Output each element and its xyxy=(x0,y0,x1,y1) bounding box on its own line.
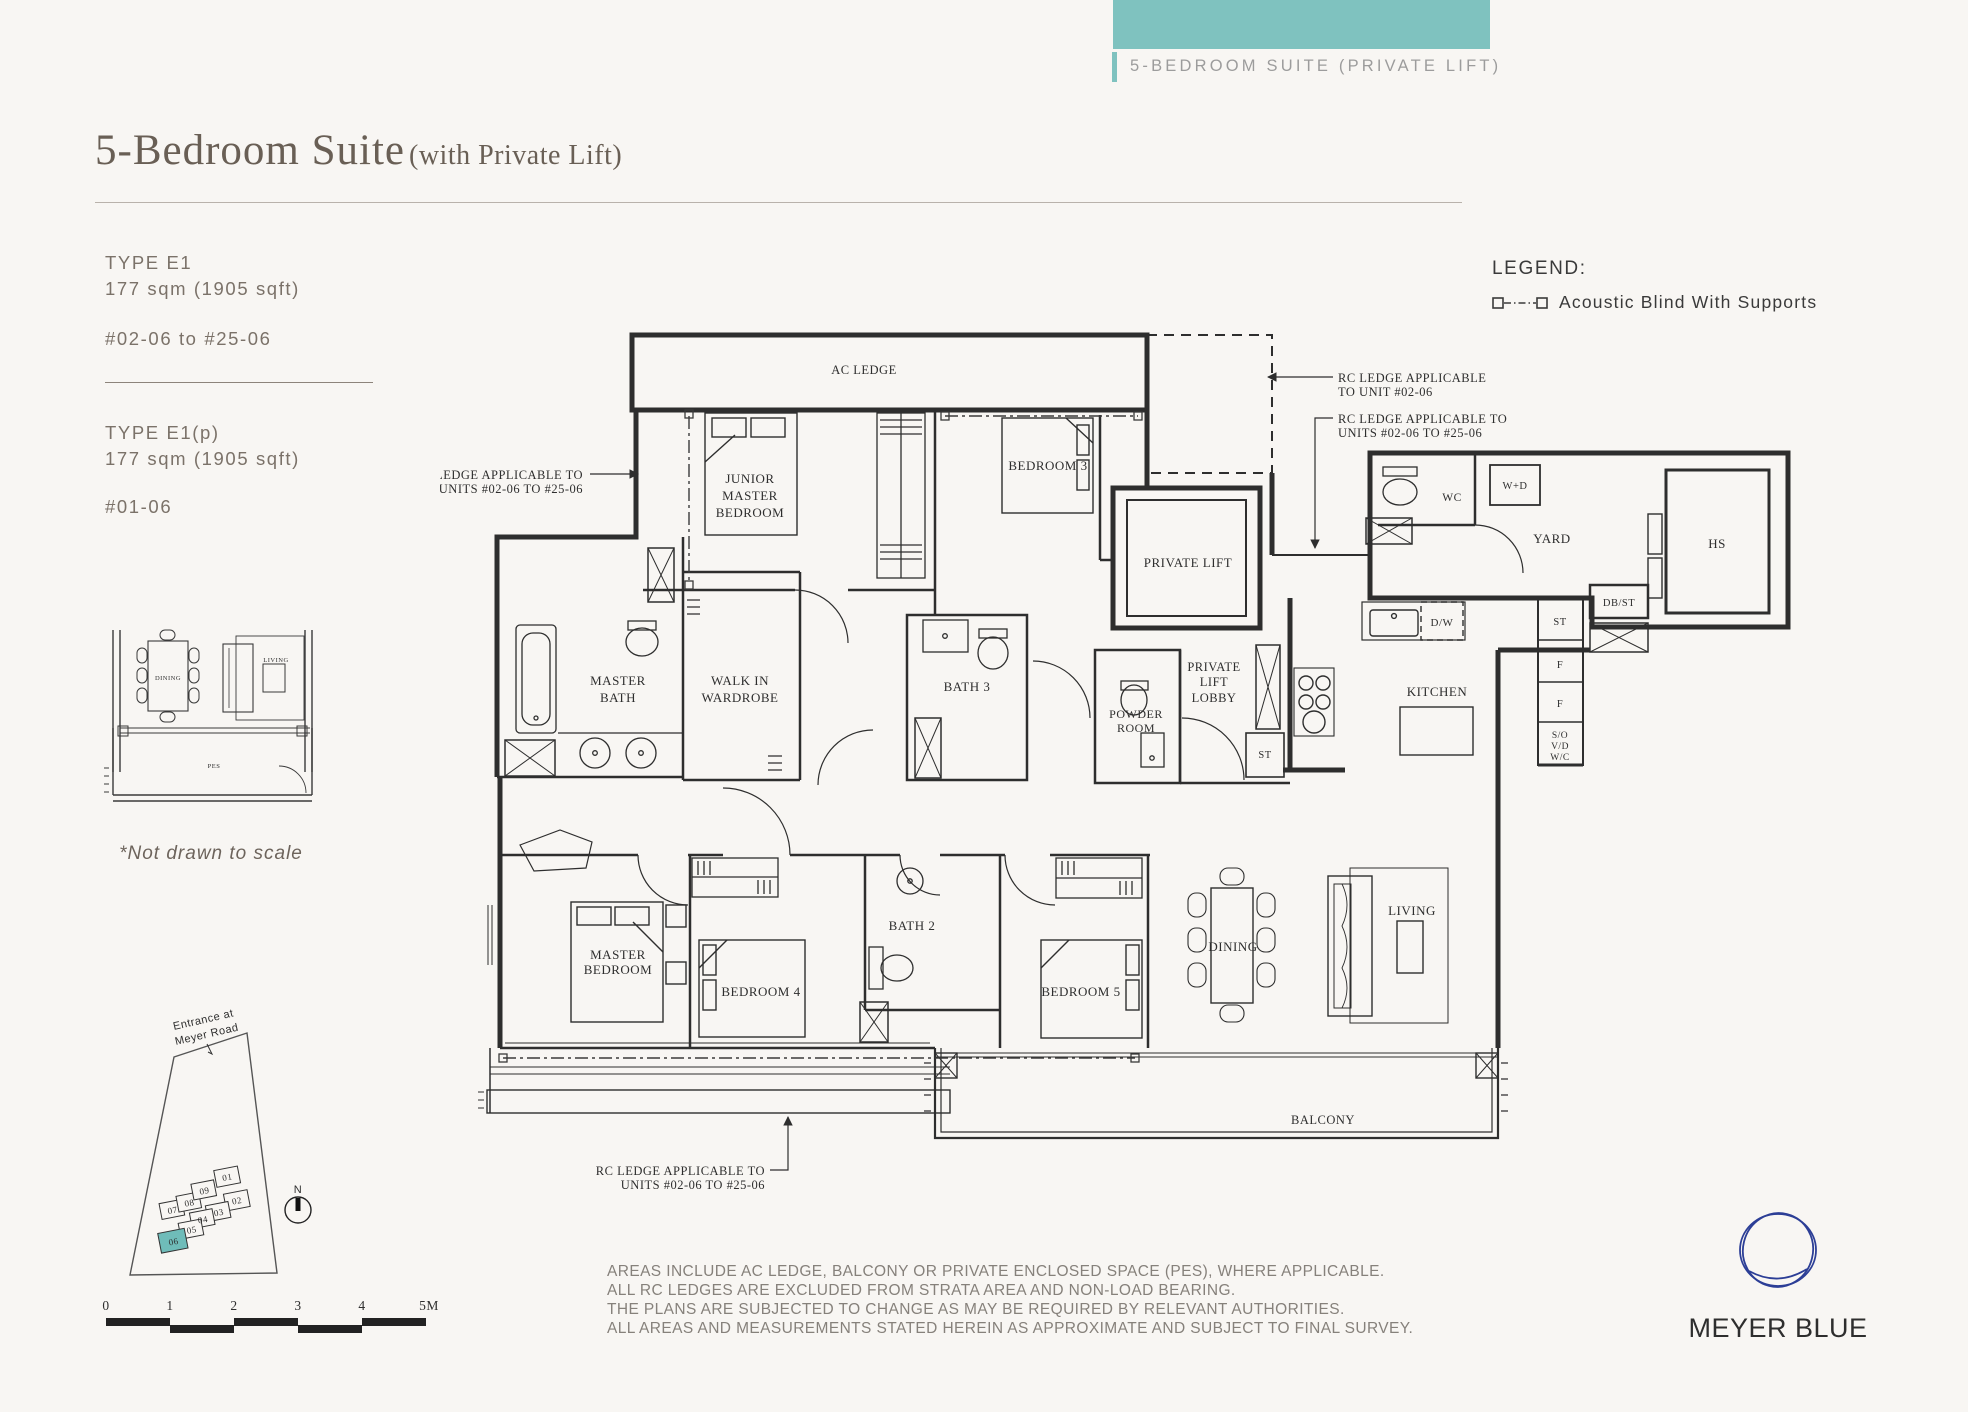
type-e1p-label: TYPE E1(p) xyxy=(105,420,300,446)
scale-3: 3 xyxy=(294,1298,301,1313)
label-dbst: DB/ST xyxy=(1603,598,1635,609)
label-balcony: BALCONY xyxy=(1291,1113,1355,1127)
disclaimer-line-1: AREAS INCLUDE AC LEDGE, BALCONY OR PRIVA… xyxy=(607,1262,1413,1281)
site-unit-04: 04 xyxy=(197,1214,209,1226)
note-b-1: RC LEDGE APPLICABLE TO xyxy=(596,1164,765,1178)
label-lobby-3: LOBBY xyxy=(1192,691,1237,705)
balcony-walls xyxy=(924,1048,1508,1138)
label-bath3: BATH 3 xyxy=(944,679,991,694)
label-so: S/O xyxy=(1552,731,1568,741)
site-plan: Entrance at Meyer Road 01 02 03 04 05 06… xyxy=(105,995,375,1295)
page-title-sub: (with Private Lift) xyxy=(409,140,622,171)
label-vd: V/D xyxy=(1551,742,1569,752)
legend-heading: LEGEND: xyxy=(1492,258,1587,280)
label-kitchen: KITCHEN xyxy=(1407,684,1468,699)
site-unit-09: 09 xyxy=(199,1185,211,1197)
label-ac-ledge: AC LEDGE xyxy=(831,363,896,377)
label-st-lobby: ST xyxy=(1258,750,1271,761)
entrance-label: Entrance at Meyer Road xyxy=(170,1007,239,1048)
meyer-blue-logo: MEYER BLUE xyxy=(1650,1195,1906,1355)
scale-2: 2 xyxy=(230,1298,237,1313)
label-wc: WC xyxy=(1442,492,1462,504)
label-lobby-2: LIFT xyxy=(1200,675,1228,689)
site-unit-07: 07 xyxy=(167,1204,179,1216)
disclaimer-line-3: THE PLANS ARE SUBJECTED TO CHANGE AS MAY… xyxy=(607,1300,1413,1319)
mini-label-dining: DINING xyxy=(155,675,181,682)
label-mbr-2: BEDROOM xyxy=(584,962,653,977)
legend-item-label: Acoustic Blind With Supports xyxy=(1559,292,1817,313)
label-living: LIVING xyxy=(1388,903,1436,918)
acoustic-blind-symbol xyxy=(1492,296,1548,310)
note-r2-1: RC LEDGE APPLICABLE TO xyxy=(1338,412,1507,426)
logo-wordmark: MEYER BLUE xyxy=(1688,1313,1867,1343)
note-left-1: RC LEDGE APPLICABLE TO xyxy=(440,468,583,482)
disclaimer-line-4: ALL AREAS AND MEASUREMENTS STATED HEREIN… xyxy=(607,1319,1413,1338)
note-r1-1: RC LEDGE APPLICABLE xyxy=(1338,371,1486,385)
site-unit-06: 06 xyxy=(168,1236,180,1248)
legend-item: Acoustic Blind With Supports xyxy=(1492,292,1817,313)
label-junior-2: MASTER xyxy=(722,488,778,503)
mini-label-living: LIVING xyxy=(263,657,288,664)
type-e1-block: TYPE E1 177 sqm (1905 sqft) xyxy=(105,250,300,302)
site-unit-01: 01 xyxy=(221,1171,233,1183)
type-e1-area: 177 sqm (1905 sqft) xyxy=(105,276,300,302)
svg-text:N: N xyxy=(294,1184,302,1196)
label-f1: F xyxy=(1557,660,1563,671)
site-unit-03: 03 xyxy=(213,1207,225,1219)
site-unit-08: 08 xyxy=(184,1197,196,1209)
scale-bar: 0 1 2 3 4 5M xyxy=(85,1296,450,1341)
label-junior-1: JUNIOR xyxy=(725,471,774,486)
label-f2: F xyxy=(1557,699,1563,710)
type-e1-label: TYPE E1 xyxy=(105,250,300,276)
label-bedroom4: BEDROOM 4 xyxy=(721,984,800,999)
label-bath2: BATH 2 xyxy=(889,918,936,933)
page-tag: 5-BEDROOM SUITE (PRIVATE LIFT) xyxy=(1130,57,1501,76)
bath-fixtures xyxy=(516,467,1417,989)
type-divider xyxy=(105,382,373,383)
label-wiw-2: WARDROBE xyxy=(702,690,779,705)
title-divider xyxy=(95,202,1462,203)
label-master-bath-2: BATH xyxy=(600,690,636,705)
dining-living-furniture xyxy=(520,830,1448,1023)
label-yard: YARD xyxy=(1533,531,1570,546)
site-unit-02: 02 xyxy=(231,1195,243,1207)
scale-1: 1 xyxy=(166,1298,173,1313)
floor-plan: AC LEDGE JUNIOR MASTER BEDROOM BEDROOM 3… xyxy=(440,320,1800,1200)
label-bedroom5: BEDROOM 5 xyxy=(1041,984,1120,999)
beds xyxy=(571,413,1142,1038)
site-buildings: 01 02 03 04 05 06 07 08 09 xyxy=(148,1165,256,1253)
label-st-col: ST xyxy=(1553,617,1566,628)
label-lobby-1: PRIVATE xyxy=(1187,660,1240,674)
note-r1-2: TO UNIT #02-06 xyxy=(1338,385,1433,399)
type-e1p-block: TYPE E1(p) 177 sqm (1905 sqft) xyxy=(105,420,300,472)
label-bedroom3: BEDROOM 3 xyxy=(1008,458,1087,473)
plan-annotations: RC LEDGE APPLICABLE TO UNITS #02-06 TO #… xyxy=(440,371,1507,1192)
room-labels: AC LEDGE JUNIOR MASTER BEDROOM BEDROOM 3… xyxy=(584,363,1726,1127)
note-r2-2: UNITS #02-06 TO #25-06 xyxy=(1338,426,1482,440)
label-wiw-1: WALK IN xyxy=(711,673,769,688)
label-powder-1: POWDER xyxy=(1109,707,1163,721)
rc-ledge-dashed-outline xyxy=(1147,335,1272,473)
note-b-2: UNITS #02-06 TO #25-06 xyxy=(621,1178,765,1192)
kitchen-fixtures xyxy=(1294,465,1662,755)
site-boundary xyxy=(130,1033,277,1275)
not-to-scale-note: *Not drawn to scale xyxy=(95,843,327,865)
teal-tick xyxy=(1112,52,1117,82)
scale-4: 4 xyxy=(358,1298,365,1313)
label-private-lift: PRIVATE LIFT xyxy=(1144,555,1232,570)
label-wc2: W/C xyxy=(1550,753,1569,763)
label-junior-3: BEDROOM xyxy=(716,505,785,520)
mini-label-pes: PES xyxy=(208,763,221,770)
label-master-bath-1: MASTER xyxy=(590,673,646,688)
logo-circle-icon xyxy=(1735,1206,1821,1295)
type-e1p-units: #01-06 xyxy=(105,496,172,518)
teal-banner xyxy=(1113,0,1490,49)
page-title-main: 5-Bedroom Suite xyxy=(95,127,405,174)
label-hs: HS xyxy=(1708,536,1726,551)
door-arcs xyxy=(638,525,1523,905)
scale-0: 0 xyxy=(102,1298,109,1313)
disclaimer: AREAS INCLUDE AC LEDGE, BALCONY OR PRIVA… xyxy=(607,1262,1413,1338)
window-left xyxy=(488,905,492,965)
scale-5m: 5M xyxy=(419,1298,439,1313)
north-arrow: N xyxy=(285,1184,311,1223)
label-mbr-1: MASTER xyxy=(590,947,646,962)
page-title: 5-Bedroom Suite (with Private Lift) xyxy=(95,126,622,175)
note-left-2: UNITS #02-06 TO #25-06 xyxy=(440,482,583,496)
mini-plan: DINING LIVING PES xyxy=(95,618,327,840)
label-dw: D/W xyxy=(1431,617,1454,629)
type-e1p-area: 177 sqm (1905 sqft) xyxy=(105,446,300,472)
disclaimer-line-2: ALL RC LEDGES ARE EXCLUDED FROM STRATA A… xyxy=(607,1281,1413,1300)
type-e1-units: #02-06 to #25-06 xyxy=(105,328,272,350)
label-powder-2: ROOM xyxy=(1117,721,1155,735)
site-unit-05: 05 xyxy=(186,1224,198,1236)
label-dining: DINING xyxy=(1208,939,1257,954)
label-wd: W+D xyxy=(1503,481,1528,492)
